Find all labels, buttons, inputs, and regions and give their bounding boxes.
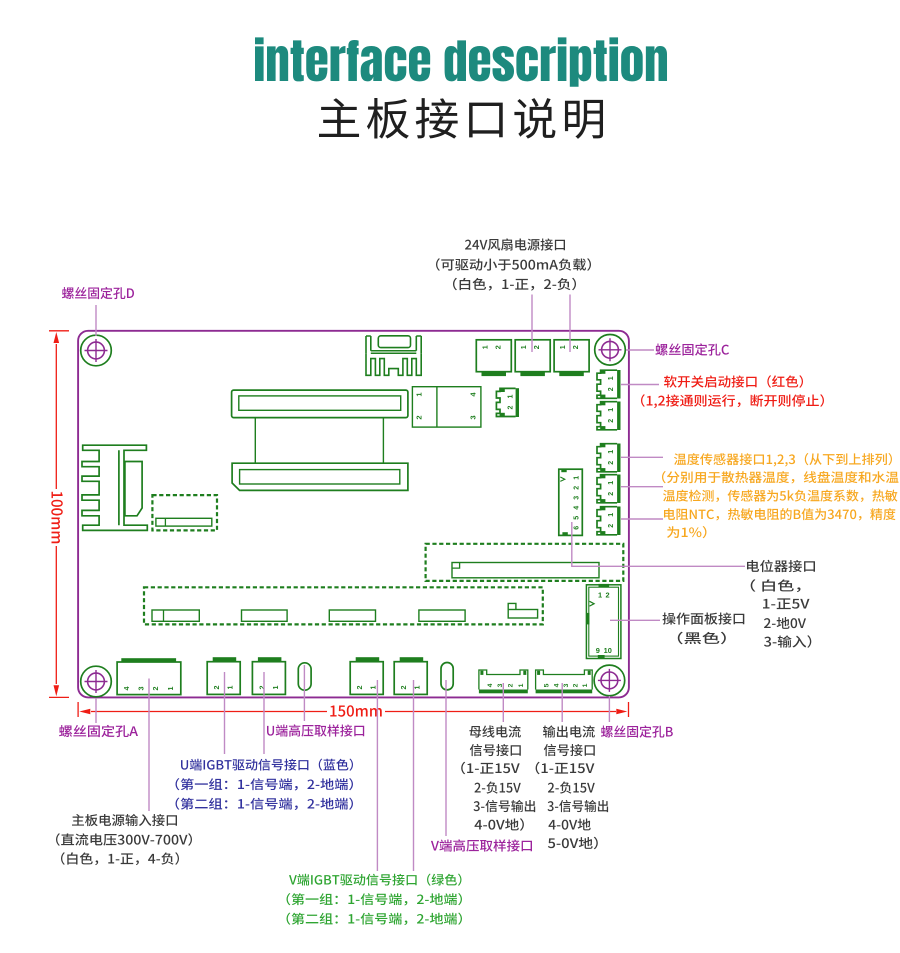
svg-text:2: 2 xyxy=(571,345,580,349)
svg-text:2: 2 xyxy=(573,683,580,687)
svg-text:4: 4 xyxy=(487,683,494,687)
svg-text:1: 1 xyxy=(166,687,175,691)
svg-text:1: 1 xyxy=(414,392,423,397)
svg-text:3: 3 xyxy=(574,496,581,500)
svg-text:2: 2 xyxy=(532,345,541,349)
svg-text:1: 1 xyxy=(518,683,525,687)
svg-text:1: 1 xyxy=(608,408,615,412)
svg-text:2: 2 xyxy=(508,683,515,687)
svg-text:1: 1 xyxy=(271,686,280,690)
svg-text:2: 2 xyxy=(608,419,615,423)
svg-text:10: 10 xyxy=(604,646,612,655)
svg-text:2: 2 xyxy=(257,686,266,690)
svg-text:2: 2 xyxy=(608,492,615,496)
svg-text:1: 1 xyxy=(480,345,489,349)
svg-text:2: 2 xyxy=(574,486,581,490)
svg-text:2: 2 xyxy=(414,415,423,419)
svg-text:3: 3 xyxy=(563,683,570,687)
svg-text:1: 1 xyxy=(508,394,515,398)
svg-text:2: 2 xyxy=(608,524,615,528)
svg-text:3: 3 xyxy=(469,415,478,419)
svg-text:1: 1 xyxy=(598,590,602,599)
svg-text:1: 1 xyxy=(519,345,528,349)
svg-text:4: 4 xyxy=(574,506,581,510)
svg-text:4: 4 xyxy=(122,687,131,691)
svg-text:5: 5 xyxy=(574,516,581,520)
svg-text:5: 5 xyxy=(544,683,551,687)
svg-text:6: 6 xyxy=(574,526,581,530)
svg-text:1: 1 xyxy=(608,513,615,517)
svg-text:1: 1 xyxy=(226,686,235,690)
svg-text:2: 2 xyxy=(605,590,609,599)
svg-text:9: 9 xyxy=(596,646,600,655)
svg-text:4: 4 xyxy=(553,683,560,687)
svg-text:1: 1 xyxy=(608,481,615,485)
svg-text:2: 2 xyxy=(608,461,615,465)
svg-text:1: 1 xyxy=(582,683,589,687)
svg-text:1: 1 xyxy=(574,476,581,480)
svg-text:2: 2 xyxy=(493,345,502,349)
svg-text:1: 1 xyxy=(608,376,615,380)
svg-text:3: 3 xyxy=(137,687,146,691)
svg-text:2: 2 xyxy=(151,687,160,691)
svg-text:4: 4 xyxy=(469,392,478,397)
svg-text:1: 1 xyxy=(369,686,378,690)
svg-text:2: 2 xyxy=(355,686,364,690)
svg-text:1: 1 xyxy=(608,450,615,454)
svg-text:2: 2 xyxy=(399,686,408,690)
svg-text:2: 2 xyxy=(212,686,221,690)
svg-text:2: 2 xyxy=(508,405,515,409)
svg-text:1: 1 xyxy=(558,345,567,349)
svg-text:2: 2 xyxy=(608,387,615,391)
